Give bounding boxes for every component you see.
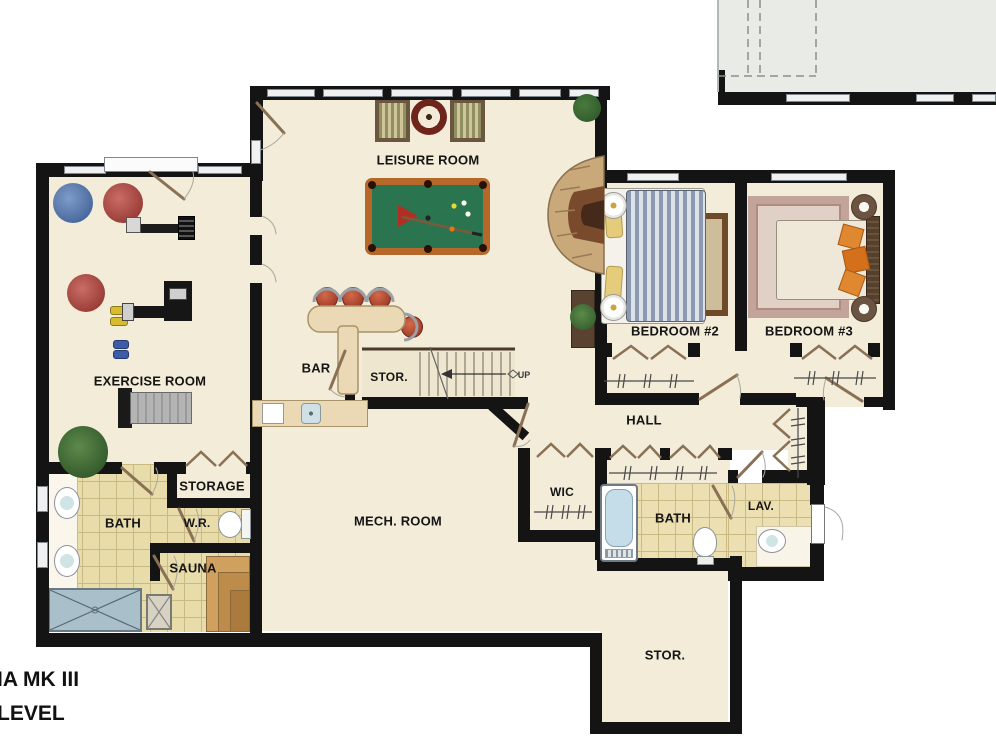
wall [730,556,742,734]
plant [58,426,108,478]
wall [250,283,262,464]
wall [167,498,253,508]
nightstand-lamp [600,294,627,321]
wall [660,448,670,460]
armchair [450,100,485,142]
billiard-rack [398,205,418,227]
exterior-door-panel [811,504,825,544]
wall [718,448,732,460]
pool-pocket [479,244,487,252]
stairs-up-label: UP [518,370,531,380]
nightstand-lamp [851,194,877,220]
armchair [375,100,410,142]
pool-pocket [479,181,487,189]
room-label-leisure: LEISURE ROOM [377,153,480,168]
wall [600,343,612,357]
wall [250,177,262,217]
bar-fridge [262,403,284,424]
window [916,94,954,102]
wall [790,343,802,357]
pool-pocket [368,181,376,189]
wall [762,470,820,483]
wall [740,393,796,405]
shower [48,588,142,632]
bar-stool [369,287,391,309]
bay-window [104,157,198,172]
room-label-bedroom2: BEDROOM #2 [631,324,719,339]
sauna-bench-step3 [230,590,250,632]
pool-pocket [368,244,376,252]
window [391,89,453,97]
plant [570,304,596,330]
wall [590,722,742,734]
wall [864,397,895,407]
wall [590,633,602,734]
nightstand-lamp [600,192,627,219]
room-label-bath-right: BATH [655,511,691,526]
wall [597,448,611,460]
window [519,89,561,97]
plan-title-line2: LEVEL [0,697,79,731]
window [64,166,106,174]
pool-table [365,178,490,255]
pool-pocket [424,245,432,253]
wall [728,470,738,483]
multi-gym-endpad [122,303,134,321]
wall [735,183,747,351]
toilet-base [697,556,714,565]
plan-title-line1: IA MK III [0,663,79,697]
exercise-ball-red [67,274,105,312]
window [771,173,847,181]
toilet [693,527,717,557]
floor-plan: LEISURE ROOM EXERCISE ROOM BAR STOR. BED… [0,0,996,749]
weight-stack [178,216,195,240]
window [972,94,996,102]
wall [150,553,160,581]
room-label-sauna: SAUNA [169,561,216,576]
wall [688,343,700,357]
room-label-bar: BAR [302,361,331,376]
room-label-stair-storage: STOR. [370,370,407,384]
bar-stool [401,316,423,338]
garage-wall [718,92,996,105]
room-label-lav: LAV. [748,499,774,513]
plant [573,94,601,122]
wall [250,235,262,265]
treadmill-deck [130,392,192,424]
room-label-bedroom3: BEDROOM #3 [765,324,853,339]
side-table [411,99,447,135]
pool-pocket [424,180,432,188]
bathtub-faucet [605,549,633,558]
wall [246,462,262,474]
wall [595,393,699,405]
bar-stool [316,287,338,309]
window [323,89,383,97]
garage-area [718,0,996,94]
nightstand-lamp [851,296,877,322]
floor-drain [146,594,172,630]
window [37,542,48,568]
wall [810,483,824,505]
room-label-bath-left: BATH [105,516,141,531]
toilet-tank [241,509,251,539]
toilet [218,511,242,538]
window [251,140,261,164]
window [198,166,242,174]
room-label-wic: WIC [550,485,574,499]
wall [362,397,528,409]
wall [728,567,824,581]
sink [54,487,80,519]
multi-gym-pad [169,288,187,300]
wall [883,170,895,410]
room-label-storage: STORAGE [179,479,244,494]
window [267,89,315,97]
plan-title: IA MK III LEVEL [0,663,79,731]
wall [518,448,530,542]
window [37,486,48,512]
weight-machine-pad [126,217,141,233]
sink [758,529,786,553]
window [461,89,511,97]
room-label-stor-bottom: STOR. [645,648,686,663]
room-label-mech: MECH. ROOM [354,514,442,529]
wall [36,633,602,647]
dumbbell-blue [113,350,129,359]
garage-wall-stub [718,70,725,94]
sink [54,545,80,577]
bathtub-basin [605,489,633,547]
wall [167,464,177,500]
stor-bottom-floor [600,570,728,722]
wall [150,543,253,553]
wall [868,343,880,357]
dumbbell-blue [113,340,129,349]
wall [345,347,355,400]
duvet-striped [626,190,706,322]
room-label-wr: W.R. [184,516,211,530]
room-label-exercise: EXERCISE ROOM [94,374,206,389]
bar-stool [342,287,364,309]
bar-sink [301,403,321,424]
window [627,173,679,181]
exercise-ball-blue [53,183,93,223]
multi-gym-bench [126,306,186,318]
room-label-hall: HALL [626,413,661,428]
wall [36,163,49,647]
window [786,94,850,102]
